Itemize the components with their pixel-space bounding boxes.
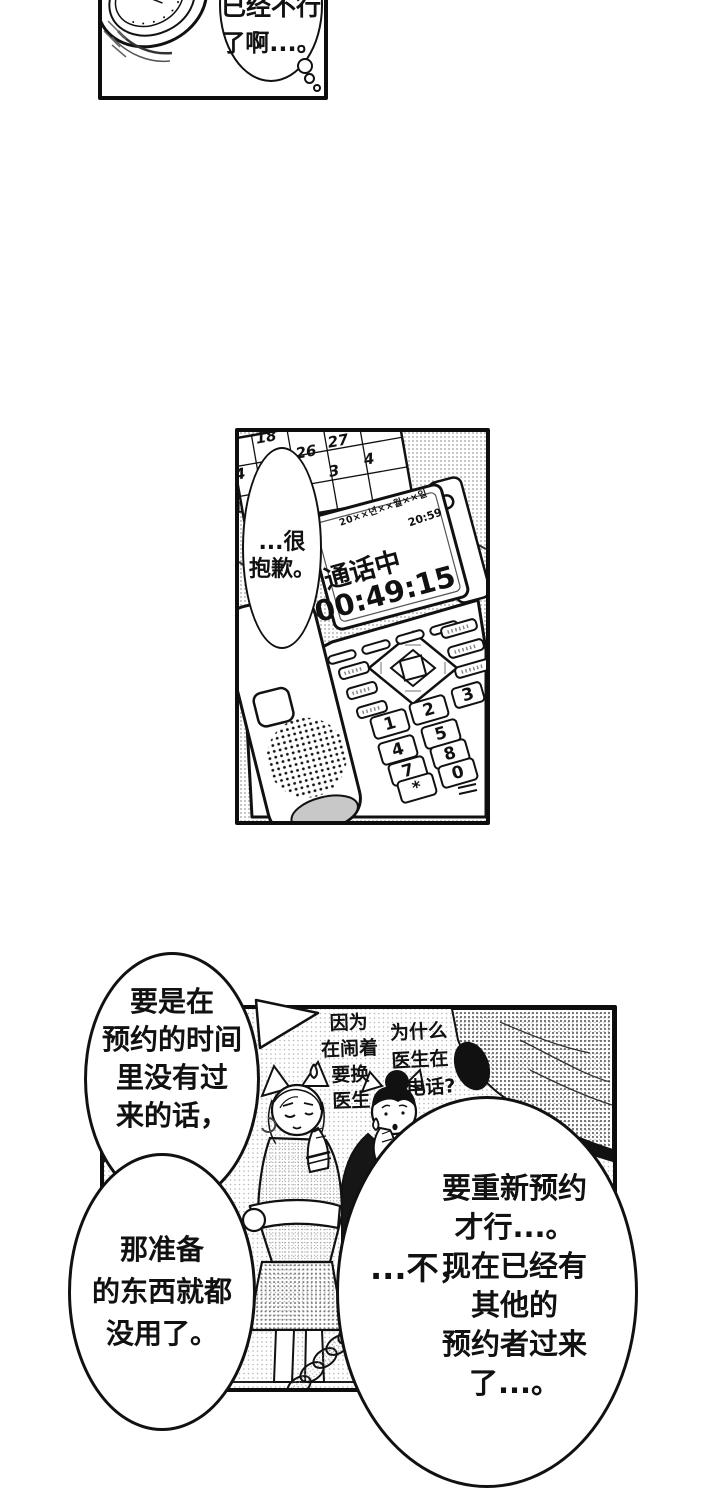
thought-tail-dot [297, 58, 313, 74]
bubble-line: ...很 [258, 529, 305, 556]
bubble-line: 预约的时间 [102, 1021, 242, 1059]
panel-middle: 18 26 27 3 4 4 1 20××년××월××일 20:59 通话中 0… [235, 428, 490, 825]
apology-speech-bubble: ...很 抱歉。 [242, 447, 322, 649]
bubble-line: 才行...。 [442, 1208, 587, 1247]
caption-line: 在闹着 [311, 1035, 388, 1064]
bubble-line: 抱歉。 [249, 556, 315, 583]
bubble-line: 其他的 [442, 1286, 587, 1325]
speech-bubble-right: 要重新预约 才行...。 现在已经有 其他的 预约者过来 了...。 [336, 1096, 638, 1488]
bubble-line: 了...。 [442, 1364, 587, 1403]
caption-line: 为什么 [378, 1016, 459, 1048]
bubble-line: 的东西就都 [92, 1271, 232, 1313]
thought-tail-dot [313, 84, 321, 92]
bubble-line: 没用了。 [106, 1313, 218, 1355]
caption-line: 打电话? [381, 1072, 462, 1104]
bubble-line: 里没有过 [116, 1059, 228, 1097]
bubble-line: 要重新预约 [442, 1169, 587, 1208]
caption-right: 为什么 医生在 打电话? [378, 1016, 462, 1104]
caption-line: 因为 [310, 1009, 387, 1038]
caption-line: 医生 [313, 1087, 390, 1116]
thought-tail-dot [304, 73, 315, 84]
caption-line: 医生在 [379, 1044, 460, 1076]
thought-text: 了啊...。 [221, 23, 320, 58]
bubble-line: 来的话， [116, 1097, 228, 1135]
bubble-line: 要是在 [130, 983, 214, 1021]
caption-line: 要换 [312, 1061, 389, 1090]
speech-bubble-bottom-left: 那准备 的东西就都 没用了。 [68, 1153, 256, 1431]
thought-text-clipped: 已经不行 [221, 0, 321, 23]
bubble-aside-text: ...不， [370, 1243, 460, 1289]
bubble-line: 那准备 [120, 1229, 204, 1271]
manga-page: 已经不行 了啊...。 [0, 0, 720, 1440]
bubble-line: 预约者过来 [442, 1325, 587, 1364]
